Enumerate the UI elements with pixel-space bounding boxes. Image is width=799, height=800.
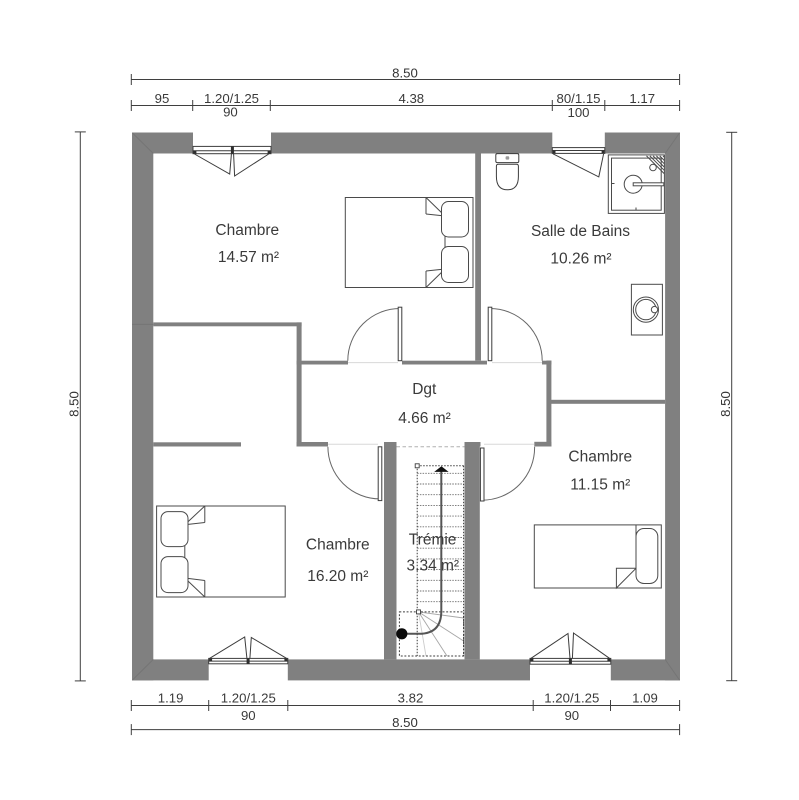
svg-text:90: 90 (564, 708, 579, 723)
svg-text:4.66 m²: 4.66 m² (398, 410, 451, 427)
svg-text:Dgt: Dgt (412, 381, 437, 398)
svg-text:8.50: 8.50 (392, 715, 418, 730)
svg-text:Trémie: Trémie (409, 532, 457, 549)
svg-text:3.82: 3.82 (398, 691, 424, 706)
svg-text:1.20/1.25: 1.20/1.25 (221, 691, 276, 706)
svg-text:10.26 m²: 10.26 m² (550, 251, 611, 268)
svg-text:Chambre: Chambre (215, 222, 279, 239)
svg-text:16.20 m²: 16.20 m² (307, 568, 368, 585)
svg-text:3.34 m²: 3.34 m² (407, 558, 460, 575)
svg-text:Chambre: Chambre (568, 449, 632, 466)
svg-text:100: 100 (567, 105, 589, 120)
svg-text:4.38: 4.38 (398, 91, 424, 106)
svg-text:8.50: 8.50 (718, 391, 733, 417)
svg-text:1.20/1.25: 1.20/1.25 (544, 691, 599, 706)
svg-text:Salle de Bains: Salle de Bains (531, 223, 630, 240)
svg-text:1.17: 1.17 (629, 91, 655, 106)
svg-text:14.57 m²: 14.57 m² (218, 249, 279, 266)
svg-text:90: 90 (241, 708, 256, 723)
svg-text:Chambre: Chambre (306, 537, 370, 554)
svg-text:8.50: 8.50 (67, 391, 82, 417)
svg-text:80/1.15: 80/1.15 (557, 91, 601, 106)
svg-text:1.09: 1.09 (632, 691, 658, 706)
svg-text:90: 90 (223, 105, 238, 120)
svg-text:1.19: 1.19 (158, 691, 184, 706)
svg-text:95: 95 (155, 91, 170, 106)
svg-text:11.15 m²: 11.15 m² (570, 477, 630, 494)
svg-text:8.50: 8.50 (392, 66, 418, 81)
